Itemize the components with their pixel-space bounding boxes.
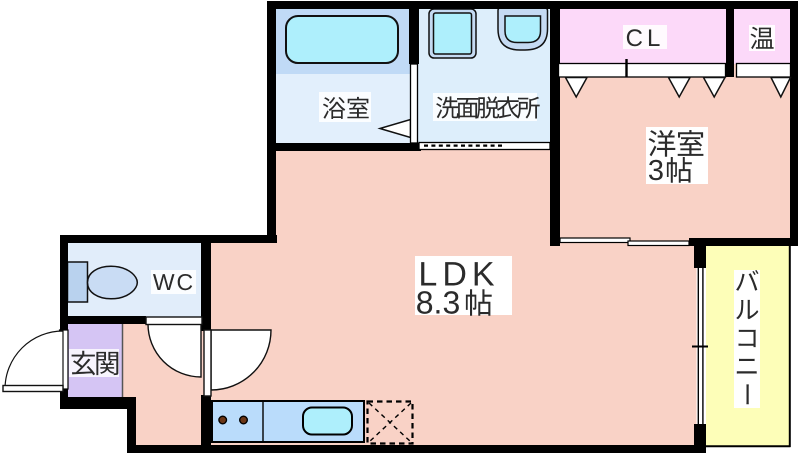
svg-text:3: 3 xyxy=(648,155,664,187)
svg-text:WC: WC xyxy=(153,269,195,295)
svg-text:CL: CL xyxy=(626,25,665,52)
svg-text:8.3: 8.3 xyxy=(416,285,460,321)
